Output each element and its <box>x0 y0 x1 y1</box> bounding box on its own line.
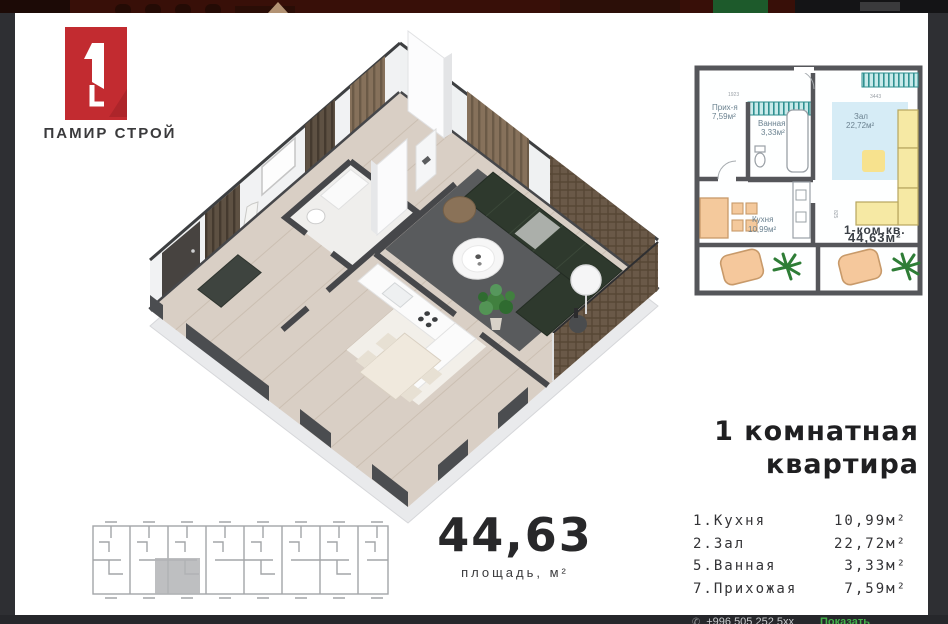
area-label: площадь, м² <box>415 565 615 580</box>
plan-bathtub <box>787 110 808 172</box>
room-name: 1.Кухня <box>693 513 766 536</box>
show-phone-link[interactable]: Показать <box>820 616 870 624</box>
phone-icon: ✆ <box>692 617 700 624</box>
plan-unit-area: 44,63м² <box>848 230 901 245</box>
room-list-item: 2.Зал 22,72м² <box>693 536 907 559</box>
plan-bath-area: 3,33м² <box>761 128 785 137</box>
plan-kitchen-area: 10,99м² <box>748 225 777 234</box>
wardrobe-side <box>444 53 452 138</box>
area-block: 44,63 площадь, м² <box>415 509 615 580</box>
vase <box>574 308 578 318</box>
plan-unit-label: 1-ком.кв. 44,63м² <box>844 223 906 245</box>
plan-kitchen-name: Кухня <box>752 215 773 224</box>
room-name: 7.Прихожая <box>693 581 797 604</box>
room-area: 7,59м² <box>844 581 907 604</box>
room-area: 3,33м² <box>844 558 907 581</box>
plan-living-name: Зал <box>854 112 868 121</box>
room-area: 22,72м² <box>834 536 907 559</box>
plan-window-block <box>862 73 918 87</box>
plan-bath-name: Ванная <box>758 119 785 128</box>
room-list-item: 1.Кухня 10,99м² <box>693 513 907 536</box>
room-name: 5.Ванная <box>693 558 776 581</box>
plan-dim-side: 825 <box>832 210 838 219</box>
listing-image: ПАМИР СТРОЙ <box>0 0 948 624</box>
phone-number[interactable]: ✆+996 505 252 5xx <box>692 616 794 624</box>
strip-dark-block <box>560 0 680 13</box>
room-area: 10,99м² <box>834 513 907 536</box>
cropped-photo-strip <box>0 0 948 13</box>
plan-living-area: 22,72м² <box>846 121 875 130</box>
strip-letter-shape <box>145 4 161 13</box>
highlighted-unit <box>155 558 200 594</box>
plan-dim-right: 3443 <box>870 94 881 100</box>
flyer-card: ПАМИР СТРОЙ <box>15 13 928 615</box>
plan-dim-left: 1923 <box>728 92 739 98</box>
wardrobe-side <box>371 160 377 235</box>
strip-roof-shape <box>268 2 288 13</box>
strip-dark-block <box>860 2 900 11</box>
room-list-item: 5.Ванная 3,33м² <box>693 558 907 581</box>
footer-bar: ✆+996 505 252 5xx Показать <box>0 615 948 624</box>
strip-letter-shape <box>205 4 221 13</box>
title-line-1: 1 комнатная <box>589 415 919 448</box>
area-value: 44,63 <box>415 509 615 561</box>
strip-letter-shape <box>115 4 131 13</box>
room-name: 2.Зал <box>693 536 745 559</box>
plan-door-gap <box>794 67 814 73</box>
building-floor-schematic <box>85 512 400 604</box>
plan-hall-name: Прих-я <box>712 103 738 112</box>
strip-letter-shape <box>175 4 191 13</box>
page-title: 1 комнатная квартира <box>589 415 919 481</box>
floor-lamp-icon <box>571 265 601 295</box>
floorplan-2d: Прих-я 7,59м² Ванная 3,33м² Зал 22,72м² … <box>688 62 928 298</box>
title-line-2: квартира <box>589 448 919 481</box>
room-list: 1.Кухня 10,99м² 2.Зал 22,72м² 5.Ванная 3… <box>693 513 907 603</box>
door-handle <box>191 249 195 253</box>
plan-toilet <box>755 153 765 167</box>
strip-shadow <box>0 0 70 13</box>
room-list-item: 7.Прихожая 7,59м² <box>693 581 907 604</box>
plan-kitchen-table <box>700 198 728 238</box>
strip-green-sign <box>713 0 768 13</box>
plan-living-table <box>862 150 885 172</box>
plan-hall-area: 7,59м² <box>712 112 736 121</box>
